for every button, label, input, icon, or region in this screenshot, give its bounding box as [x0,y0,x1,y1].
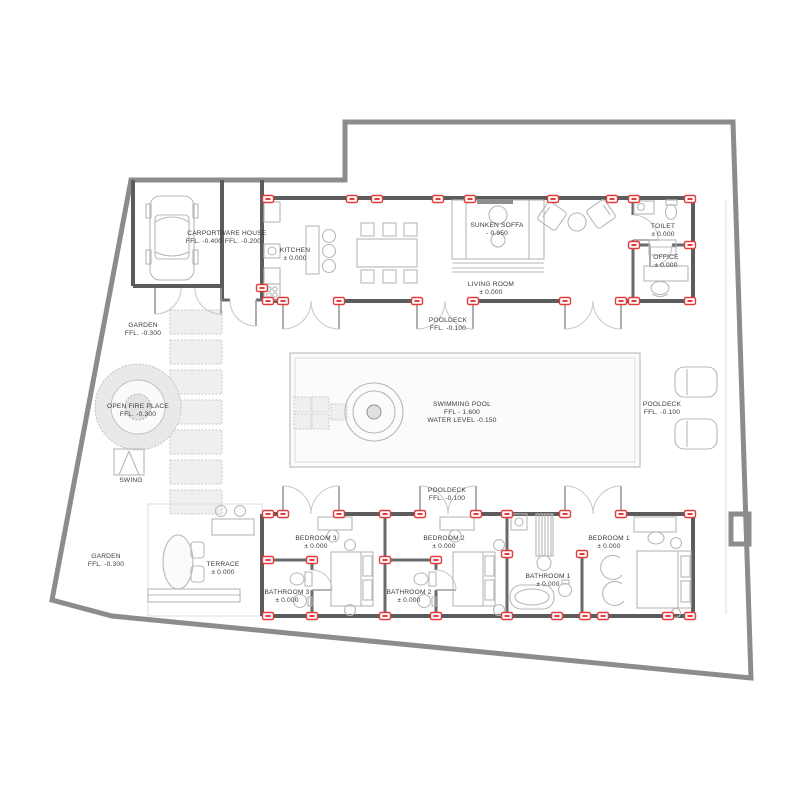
bathroom3-level: ± 0.000 [275,597,298,604]
open-fire-place-level: FFL. -0.300 [120,411,156,418]
pooldeck-bottom-level: FFL. -0.100 [429,495,465,502]
lounge-chairs-icon [537,199,617,232]
warehouse-door [230,300,256,326]
bathroom3-walls [262,560,312,616]
bedroom1-furniture [601,517,691,618]
dining-table-icon [357,223,417,283]
garden-top-level: FFL. -0.300 [125,330,161,337]
pooldeck-right-label: POOLDECK [643,401,682,408]
swimming-pool-label: SWIMMING POOL [433,401,491,408]
sunken-soffa-level: - 0.950 [486,230,508,237]
kitchen-level: ± 0.000 [283,255,306,262]
bedroom3-level: ± 0.000 [304,543,327,550]
swimming-pool-water-level: WATER LEVEL -0.150 [427,417,496,424]
garden-top-label: GARDEN [128,322,157,329]
garden-bottom-label: GARDEN [91,553,120,560]
carport-label: CARPORT [187,230,221,237]
bathroom2-level: ± 0.000 [397,597,420,604]
carport-level: FFL. -0.400 [186,238,222,245]
terrace-label: TERRACE [207,561,240,568]
living-room-level: ± 0.000 [479,289,502,296]
bedroom3-label: BEDROOM 3 [295,535,337,542]
bathroom3-door [312,570,332,590]
bathroom2-label: BATHROOM 2 [386,589,431,596]
sunken-soffa-label: SUNKEN SOFFA [470,222,524,229]
bathroom2-walls [385,560,436,616]
swing-label: SWING [119,477,142,484]
floor-plan-canvas: CARPORT FFL. -0.400 WARE HOUSE FFL. -0.2… [0,0,800,800]
bedroom2-level: ± 0.000 [432,543,455,550]
bedroom1-label: BEDROOM 1 [588,535,630,542]
bedroom2-label: BEDROOM 2 [423,535,465,542]
bathroom1-label: BATHROOM 1 [525,573,570,580]
living-room-label: LIVING ROOM [468,281,514,288]
terrace-level: ± 0.000 [211,569,234,576]
swing-icon [114,449,144,475]
bedroom3-furniture [318,517,373,616]
office-level: ± 0.000 [654,262,677,269]
pooldeck-right-level: FFL. -0.100 [644,409,680,416]
bedroom2-furniture [440,517,505,616]
open-fire-place-label: OPEN FIRE PLACE [107,403,169,410]
warehouse-level: FFL. -0.200 [225,238,261,245]
kitchen-label: KITCHEN [280,247,310,254]
terrace-furniture [148,504,262,616]
pooldeck-top-label: POOLDECK [429,317,468,324]
bathroom1-fixtures [510,514,572,609]
garden-bottom-level: FFL. -0.300 [88,561,124,568]
toilet-level: ± 0.000 [651,231,674,238]
office-label: OFFICE [653,254,679,261]
pooldeck-bottom-label: POOLDECK [428,487,467,494]
bedroom1-level: ± 0.000 [597,543,620,550]
bathroom3-label: BATHROOM 3 [264,589,309,596]
warehouse-label: WARE HOUSE [220,230,267,237]
pool-loungers [675,367,717,449]
toilet-label: TOILET [651,223,675,230]
bathroom1-level: ± 0.000 [536,581,559,588]
swimming-pool-level: FFL - 1.600 [444,409,480,416]
pooldeck-top-level: FFL. -0.100 [430,325,466,332]
